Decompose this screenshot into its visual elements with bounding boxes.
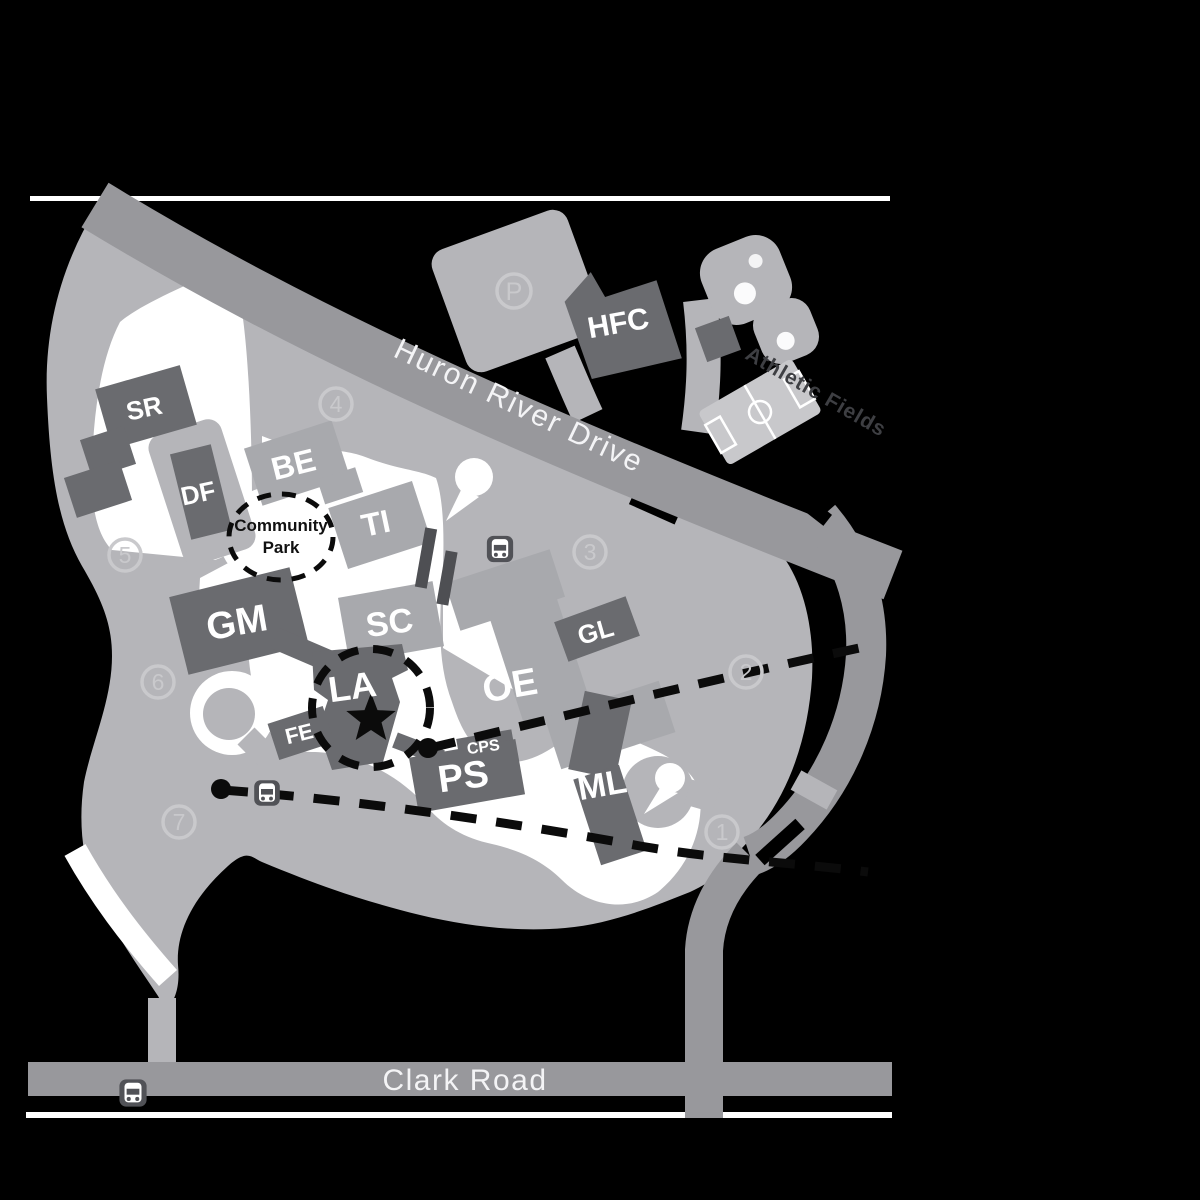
svg-text:1: 1 [716, 819, 729, 845]
svg-text:6: 6 [152, 669, 165, 695]
svg-text:P: P [506, 278, 523, 306]
svg-text:7: 7 [173, 809, 186, 835]
north-boundary-line [30, 196, 890, 201]
building-label-sc: SC [363, 601, 415, 645]
svg-text:5: 5 [119, 542, 132, 568]
svg-text:3: 3 [584, 539, 597, 565]
svg-text:2: 2 [740, 659, 753, 685]
campus-map-svg: 1 2 3 4 5 6 7 P HFC [0, 0, 1200, 1200]
svg-text:Community: Community [234, 516, 328, 535]
svg-text:Park: Park [263, 538, 300, 557]
south-boundary-line [26, 1112, 892, 1118]
bus-stop-icon-north[interactable] [487, 536, 513, 562]
building-label-ps: PS [435, 753, 491, 802]
svg-text:4: 4 [330, 391, 343, 417]
bus-stop-icon-west[interactable] [254, 780, 280, 806]
campus-map: 1 2 3 4 5 6 7 P HFC [0, 0, 1200, 1200]
bus-stop-icon-clark[interactable] [119, 1079, 146, 1106]
route-endpoint-center[interactable] [418, 738, 438, 758]
building-label-la: LA [326, 663, 379, 710]
route-endpoint-west[interactable] [211, 779, 231, 799]
clark-road-label: Clark Road [382, 1064, 547, 1097]
